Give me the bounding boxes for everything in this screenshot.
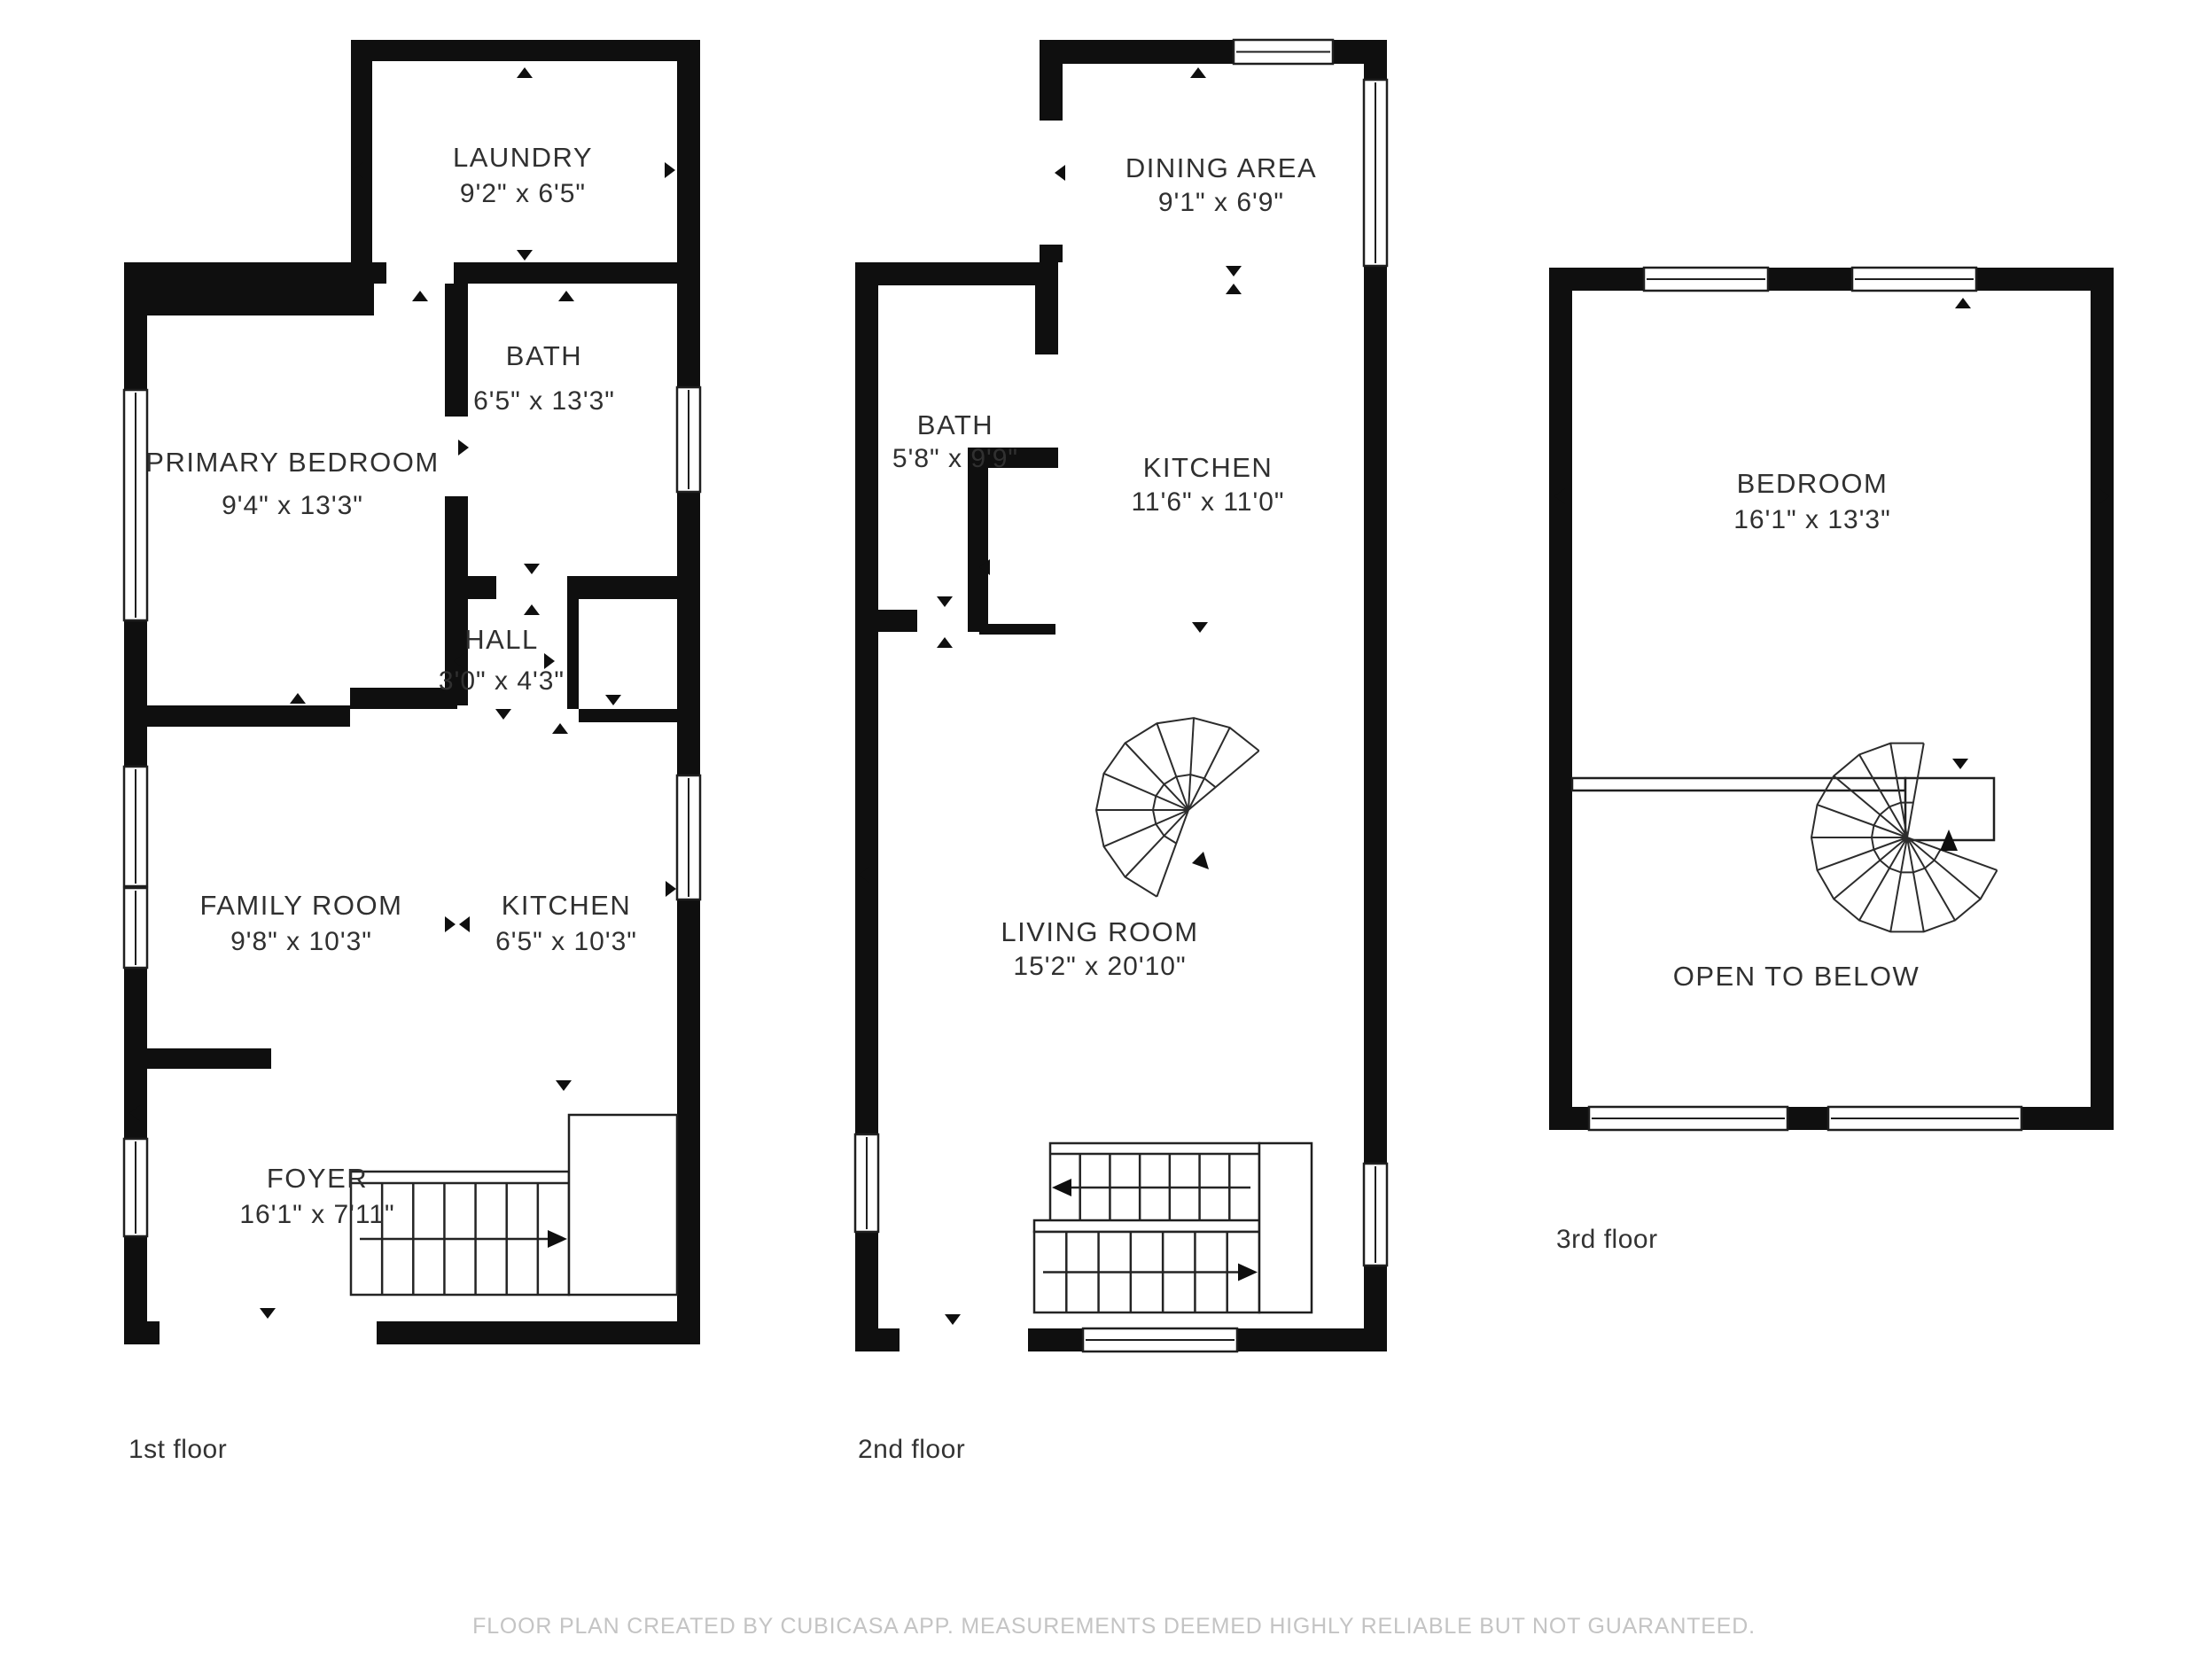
door-marker (1955, 298, 1971, 308)
room-name: BATH (917, 409, 993, 440)
window (1364, 80, 1387, 266)
floor-plan-page: LAUNDRY 9'2" x 6'5" PRIMARY BEDROOM 9'4"… (0, 0, 2212, 1659)
door-marker (290, 693, 306, 704)
window (1083, 1328, 1237, 1351)
disclaimer-text: FLOOR PLAN CREATED BY CUBICASA APP. MEAS… (472, 1614, 1756, 1639)
floor-2-staircase (1034, 1143, 1312, 1312)
door-marker (260, 1308, 276, 1319)
floor-3-windows (1589, 268, 2021, 1130)
door-marker (937, 637, 953, 648)
room-label-laundry: LAUNDRY 9'2" x 6'5" (453, 142, 593, 208)
door-marker (495, 709, 511, 720)
window (1644, 268, 1768, 291)
door-marker (552, 723, 568, 734)
door-marker (558, 291, 574, 301)
room-name: BATH (506, 340, 582, 371)
room-label-primary-bedroom: PRIMARY BEDROOM 9'4" x 13'3" (145, 447, 439, 520)
room-label-kitchen-2: KITCHEN 11'6" x 11'0" (1131, 452, 1284, 517)
room-label-living-room: LIVING ROOM 15'2" x 20'10" (1001, 916, 1198, 981)
room-label-bedroom: BEDROOM 16'1" x 13'3" (1733, 468, 1891, 534)
room-dims: 6'5" x 13'3" (473, 386, 615, 416)
floor-2-plan: DINING AREA 9'1" x 6'9" BATH 5'8" x 9'9"… (855, 40, 1387, 1464)
room-dims: 16'1" x 13'3" (1733, 505, 1891, 534)
door-marker (945, 1314, 961, 1325)
straight-stairs-upper (1050, 1143, 1259, 1221)
door-marker (517, 250, 533, 261)
door-marker (1192, 622, 1208, 633)
door-marker (517, 67, 533, 78)
floor-plan-canvas: LAUNDRY 9'2" x 6'5" PRIMARY BEDROOM 9'4"… (0, 0, 2212, 1659)
room-dims: 11'6" x 11'0" (1131, 487, 1284, 517)
opening-marker (459, 916, 470, 932)
door-marker (1190, 67, 1206, 78)
room-dims: 9'1" x 6'9" (1158, 188, 1284, 217)
room-name: DINING AREA (1125, 152, 1317, 183)
room-dims: 9'2" x 6'5" (460, 179, 586, 208)
room-name: KITCHEN (502, 890, 632, 921)
room-label-bath-1: BATH 6'5" x 13'3" (473, 340, 615, 416)
stair-landing (569, 1115, 677, 1295)
floor-1-plan: LAUNDRY 9'2" x 6'5" PRIMARY BEDROOM 9'4"… (124, 40, 700, 1464)
window (1852, 268, 1976, 291)
door-marker (524, 604, 540, 615)
floor-3-walls (1549, 268, 2114, 1130)
door-marker (1055, 165, 1065, 181)
window (1234, 40, 1333, 64)
window (124, 888, 147, 968)
stair-landing (1259, 1143, 1312, 1312)
door-marker (524, 564, 540, 574)
door-marker (666, 881, 676, 897)
room-name: LIVING ROOM (1001, 916, 1198, 947)
stair-direction-arrow (1192, 852, 1209, 869)
door-marker (556, 1080, 572, 1091)
floor-1-windows (124, 387, 700, 1236)
window (855, 1134, 878, 1232)
room-label-dining-area: DINING AREA 9'1" x 6'9" (1125, 152, 1317, 217)
floor-3-room-labels: BEDROOM 16'1" x 13'3" OPEN TO BELOW (1673, 468, 1920, 992)
room-dims: 6'5" x 10'3" (495, 927, 637, 956)
door-marker (665, 162, 675, 178)
floor-2-caption: 2nd floor (858, 1435, 965, 1464)
straight-stairs-lower (1034, 1232, 1259, 1312)
stair-divider (1034, 1220, 1259, 1232)
room-label-open-to-below: OPEN TO BELOW (1673, 961, 1920, 992)
floor-1-staircase (351, 1115, 677, 1295)
straight-stairs (351, 1172, 569, 1295)
room-name: FAMILY ROOM (200, 890, 403, 921)
window (124, 390, 147, 620)
door-marker (937, 596, 953, 607)
room-name: HALL (464, 624, 539, 655)
door-marker (458, 440, 469, 456)
window (1828, 1107, 2021, 1130)
door-marker (412, 291, 428, 301)
floor-3-plan: BEDROOM 16'1" x 13'3" OPEN TO BELOW 3rd … (1549, 268, 2114, 1254)
room-dims: 3'0" x 4'3" (439, 666, 565, 696)
window (677, 775, 700, 900)
room-name: OPEN TO BELOW (1673, 961, 1920, 992)
window (1589, 1107, 1788, 1130)
opening-marker (445, 916, 456, 932)
room-name: FOYER (267, 1163, 368, 1194)
floor-3-caption: 3rd floor (1556, 1225, 1658, 1254)
room-dims: 16'1" x 7'11" (239, 1200, 394, 1229)
room-name: LAUNDRY (453, 142, 593, 173)
room-dims: 9'8" x 10'3" (230, 927, 372, 956)
spiral-staircase (1096, 718, 1259, 897)
room-name: BEDROOM (1737, 468, 1889, 499)
window (124, 767, 147, 886)
room-label-bath-2: BATH 5'8" x 9'9" (892, 409, 1018, 473)
room-name: KITCHEN (1143, 452, 1273, 483)
window (1364, 1164, 1387, 1266)
interior-wall (1572, 778, 1905, 791)
window (677, 387, 700, 492)
opening-marker (1226, 266, 1242, 276)
door-marker (1952, 759, 1968, 769)
room-dims: 9'4" x 13'3" (222, 491, 363, 520)
stair-landing (1905, 778, 1994, 840)
room-label-family-room: FAMILY ROOM 9'8" x 10'3" (200, 890, 403, 956)
floor-1-caption: 1st floor (129, 1435, 227, 1464)
door-marker (605, 695, 621, 705)
room-name: PRIMARY BEDROOM (145, 447, 439, 478)
room-dims: 5'8" x 9'9" (892, 444, 1018, 473)
room-label-kitchen-1: KITCHEN 6'5" x 10'3" (495, 890, 637, 956)
window (124, 1139, 147, 1236)
opening-marker (1226, 284, 1242, 294)
room-dims: 15'2" x 20'10" (1013, 952, 1186, 981)
